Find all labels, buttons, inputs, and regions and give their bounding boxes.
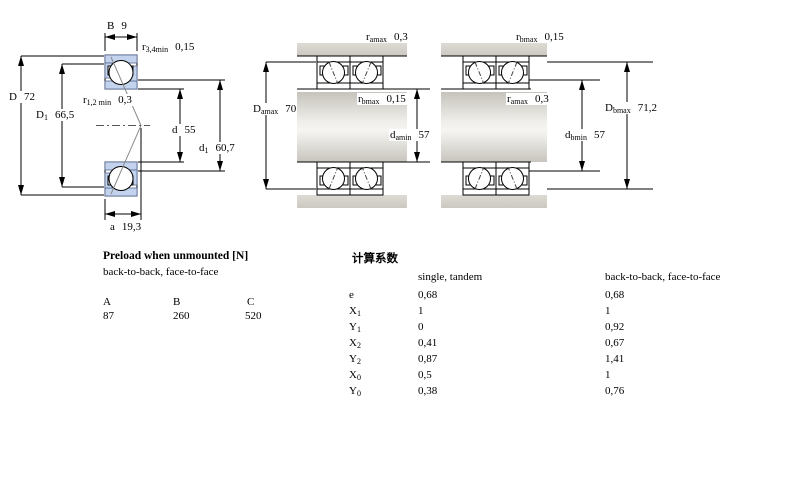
dim-label-Dbmax: Dbmax71,2	[604, 102, 658, 114]
dim-label-d1: d160,7	[198, 142, 236, 154]
dim-label-Damax: Damax70	[252, 103, 297, 115]
factor-value-btb: 1	[605, 369, 611, 381]
preload-value-A: 87	[103, 310, 114, 322]
preload-table-subtitle: back-to-back, face-to-face	[103, 266, 218, 278]
arrangement-housing-abutment	[441, 56, 653, 195]
factors-table-title: 计算系数	[352, 250, 398, 266]
preload-table-title: Preload when unmounted [N]	[103, 250, 248, 262]
factor-value-btb: 0,92	[605, 321, 624, 333]
factor-row-label: X2	[349, 337, 361, 349]
factor-row-label: Y1	[349, 321, 361, 333]
factor-value-single: 1	[418, 305, 424, 317]
dim-label-dbmin: dbmin57	[564, 129, 606, 141]
factors-col-back-to-back: back-to-back, face-to-face	[605, 271, 720, 283]
arrangement-shaft-abutment	[266, 56, 430, 195]
factor-value-single: 0,41	[418, 337, 437, 349]
factor-value-btb: 1	[605, 305, 611, 317]
factor-value-single: 0,5	[418, 369, 432, 381]
dim-label-D1: D166,5	[35, 109, 75, 121]
preload-col-A: A	[103, 296, 111, 308]
dim-label-r12min: r1,2 min0,3	[82, 94, 133, 106]
dim-label-pressure-center-a: a19,3	[110, 221, 141, 233]
dim-label-ramax-top: ramax0,3	[366, 31, 408, 43]
dim-label-rbmax-mid: rbmax0,15	[357, 93, 407, 105]
dim-label-damin: damin57	[389, 129, 431, 141]
factor-value-single: 0,87	[418, 353, 437, 365]
dim-label-bore-diameter-d: d55	[171, 124, 197, 136]
dim-label-outer-diameter-D: D72	[8, 91, 36, 103]
factor-value-single: 0	[418, 321, 424, 333]
factor-value-btb: 1,41	[605, 353, 624, 365]
factor-row-label: e	[349, 289, 354, 301]
dim-label-r34min: r3,4min0,15	[142, 41, 194, 53]
factor-value-btb: 0,76	[605, 385, 624, 397]
factor-value-btb: 0,68	[605, 289, 624, 301]
dim-label-ramax-mid: ramax0,3	[506, 93, 550, 105]
dimension-lines-b	[547, 62, 653, 189]
factor-row-label: Y0	[349, 385, 361, 397]
factor-row-label: X0	[349, 369, 361, 381]
dim-label-rbmax-top: rbmax0,15	[516, 31, 564, 43]
preload-value-C: 520	[245, 310, 262, 322]
factor-value-single: 0,68	[418, 289, 437, 301]
factor-value-btb: 0,67	[605, 337, 624, 349]
preload-col-C: C	[247, 296, 254, 308]
dim-label-width-B: B9	[107, 20, 127, 32]
bearing-datasheet-page: B9 r3,4min0,15 D72 D166,5 r1,2 min0,3 d5…	[0, 0, 800, 500]
preload-value-B: 260	[173, 310, 190, 322]
factors-col-single-tandem: single, tandem	[418, 271, 482, 283]
factor-row-label: Y2	[349, 353, 361, 365]
preload-col-B: B	[173, 296, 180, 308]
factor-row-label: X1	[349, 305, 361, 317]
factor-value-single: 0,38	[418, 385, 437, 397]
